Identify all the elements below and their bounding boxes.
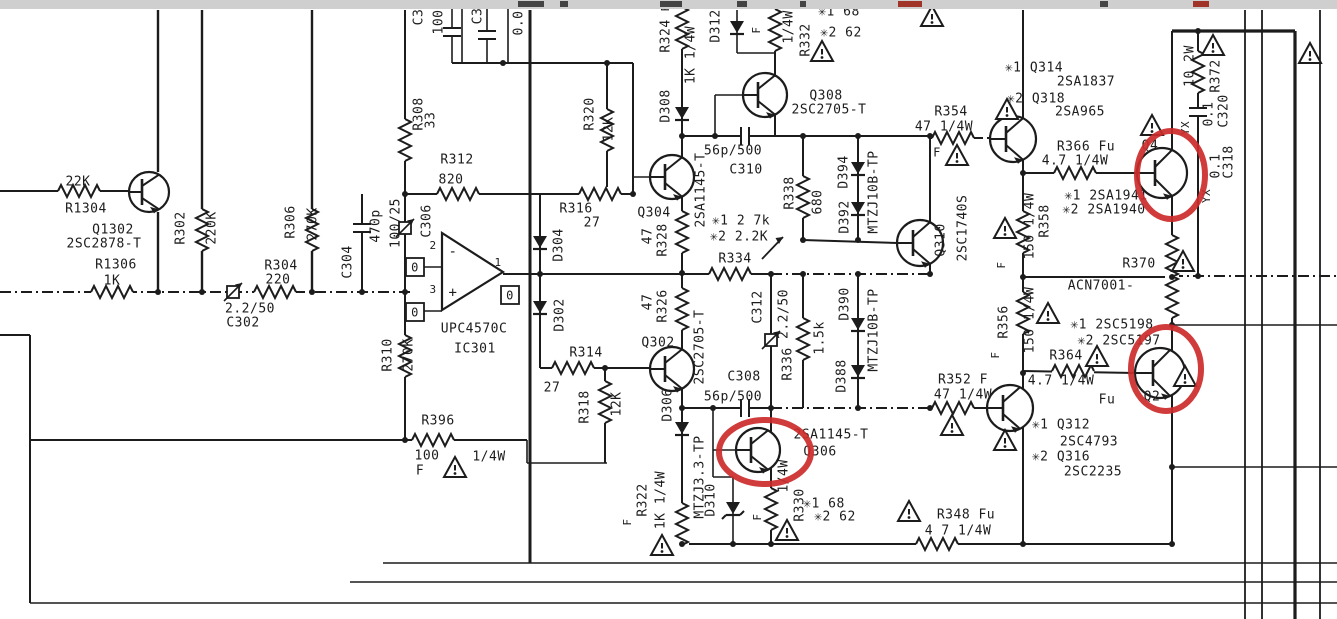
junction-dot (679, 270, 685, 276)
schematic-label: 150 1/4W (1023, 193, 1038, 260)
schematic-label: R352 F (938, 373, 988, 388)
schematic-label: F (621, 518, 634, 525)
schematic-label: D312 (709, 9, 724, 42)
schematic-label: 27 (584, 216, 601, 231)
junction-dot (679, 133, 685, 139)
junction-dot (630, 191, 636, 197)
schematic-label: 0.1 (1202, 102, 1217, 127)
schematic-label: D304 (552, 228, 567, 261)
schematic-label: R316 (559, 202, 592, 217)
schematic-label: F (995, 261, 1008, 268)
schematic-label: 56p/500 (704, 390, 762, 405)
schematic-label: 2.2/50 (777, 289, 792, 339)
schematic-label: D310 (704, 483, 719, 516)
schematic-label: 2SC1740S (956, 195, 971, 262)
junction-dot (1169, 541, 1175, 547)
junction-dot (679, 541, 685, 547)
schematic-label: D392 (838, 200, 853, 233)
junction-dot (855, 405, 861, 411)
schematic-label: F (989, 351, 1002, 358)
schematic-label: 2SC2705-T (693, 310, 708, 385)
top-scan-strip-mark (1193, 1, 1209, 7)
schematic-label: Q310 (934, 223, 949, 256)
schematic-label: ✳1 2SA1941 (1064, 189, 1147, 204)
schematic-label: 10 2W (1183, 45, 1198, 87)
wire (803, 240, 897, 243)
warning-exclamation-dot (454, 472, 457, 475)
schematic-label: 220K (205, 211, 220, 244)
junction-dot (768, 541, 774, 547)
warning-exclamation-dot (956, 160, 959, 163)
top-scan-strip-mark (800, 1, 806, 7)
schematic-label: C310 (729, 163, 762, 178)
diode-symbol (675, 422, 689, 434)
schematic-label: R354 (934, 105, 967, 120)
warning-exclamation-dot (1004, 445, 1007, 448)
schematic-label: R330 (793, 488, 808, 521)
schematic-label: 100 (432, 10, 447, 35)
schematic-label: ✳1 Q312 (1032, 418, 1090, 433)
schematic-label: 2SC2705-T (792, 103, 867, 118)
schematic-label: IC301 (454, 342, 496, 357)
schematic-label: 33 (424, 112, 439, 129)
schematic-label: 0.0 (512, 11, 527, 36)
diode-symbol (726, 502, 740, 514)
schematic-label: 3 (429, 283, 436, 296)
schematic-label: 1/4W (472, 450, 505, 465)
junction-dot (927, 405, 933, 411)
zener-tick (722, 515, 726, 519)
schematic-label: R348 Fu (937, 508, 995, 523)
schematic-label: UPC4570C (441, 322, 508, 337)
schematic-label: 4 7 1/4W (925, 524, 992, 539)
schematic-label: C306 (420, 204, 435, 237)
schematic-label: 4.7 1/4W (1028, 374, 1095, 389)
schematic-label: ✳2 2.2K (710, 230, 768, 245)
schematic-label: 1 (494, 256, 501, 269)
schematic-label: R324 (659, 19, 674, 52)
diode-symbol (533, 236, 547, 248)
schematic-label: F (933, 146, 941, 160)
schematic-label: D388 (835, 359, 850, 392)
schematic-label: C318 (1222, 145, 1237, 178)
warning-exclamation-dot (821, 56, 824, 59)
junction-dot (800, 237, 806, 243)
junction-dot (679, 405, 685, 411)
schematic-label: 56p/500 (704, 144, 762, 159)
schematic-label: 2SC4793 (1060, 435, 1118, 450)
schematic-label: R318 (578, 390, 593, 423)
schematic-label: 2 (429, 239, 436, 252)
top-scan-strip-mark (1100, 1, 1108, 7)
diode-symbol (851, 202, 865, 214)
schematic-label: ✳2 62 (814, 510, 856, 525)
schematic-label: 820 (439, 173, 464, 188)
schematic-label: R312 (440, 153, 473, 168)
junction-dot (604, 60, 610, 66)
schematic-label: R396 (421, 414, 454, 429)
junction-dot (402, 289, 408, 295)
junction-dot (710, 405, 716, 411)
schematic-label: R332 (799, 23, 814, 56)
schematic-label: ✳2 2SA1940 (1062, 203, 1145, 218)
warning-exclamation-dot (661, 550, 664, 553)
schematic-label: 1K (104, 274, 121, 289)
schematic-label: C308 (727, 370, 760, 385)
diode-symbol (675, 107, 689, 119)
junction-dot (855, 133, 861, 139)
junction-dot (402, 191, 408, 197)
top-scan-strip-mark (660, 1, 682, 7)
schematic-label: 47 1/4W (934, 388, 992, 403)
schematic-label: R302 (174, 211, 189, 244)
schematic-label: F (751, 513, 764, 520)
top-scan-strip-mark (737, 1, 747, 7)
schematic-label: D394 (837, 155, 852, 188)
junction-dot (155, 289, 161, 295)
warning-exclamation-dot (1182, 266, 1185, 269)
schematic-label: R336 (781, 347, 796, 380)
schematic-label: D390 (838, 287, 853, 320)
schematic-label: R326 (656, 289, 671, 322)
schematic-scan: 22KR1304Q13022SC2878-TR13061KR302220KR30… (0, 0, 1337, 619)
schematic-label: R1304 (65, 202, 107, 217)
schematic-label: R320 (583, 97, 598, 130)
schematic-label: 2SA965 (1055, 105, 1105, 120)
junction-dot (1169, 274, 1175, 280)
schematic-label: 27 (544, 381, 561, 396)
schematic-label: 0 (411, 306, 419, 320)
schematic-label: R304 (264, 259, 297, 274)
schematic-label: 680 (811, 190, 826, 215)
warning-exclamation-dot (1151, 130, 1154, 133)
schematic-label: ✳2 62 (820, 26, 862, 41)
schematic-label: R366 Fu (1057, 140, 1115, 155)
schematic-label: R328 (656, 223, 671, 256)
schematic-label: MTZJ10B-TP (867, 150, 882, 233)
junction-dot (768, 271, 774, 277)
junction-dot (537, 271, 543, 277)
junction-dot (1195, 28, 1201, 34)
schematic-label: D302 (553, 298, 568, 331)
diode-symbol (851, 162, 865, 174)
schematic-label: D306 (661, 388, 676, 421)
schematic-label: 2SC2235 (1064, 465, 1122, 480)
schematic-label: 12K (602, 117, 617, 142)
schematic-label: 100 (415, 449, 440, 464)
schematic-label: R356 (997, 305, 1012, 338)
schematic-label: D308 (659, 89, 674, 122)
schematic-label: 100/25 (389, 198, 404, 248)
schematic-label: 12K (610, 392, 625, 417)
schematic-label: 47 1/4W (915, 120, 973, 135)
schematic-label: Q308 (809, 89, 842, 104)
schematic-label: R310 (381, 338, 396, 371)
warning-exclamation-dot (786, 535, 789, 538)
schematic-label: 270K (306, 207, 321, 240)
schematic-label: 4.7 1/4W (1042, 154, 1109, 169)
schematic-label: + (449, 285, 458, 301)
schematic-label: 47 (641, 228, 656, 245)
warning-exclamation-dot (1184, 381, 1187, 384)
junction-dot (712, 133, 718, 139)
diode-symbol (851, 365, 865, 377)
junction-dot (800, 271, 806, 277)
schematic-label: C3 (471, 8, 486, 25)
junction-dot (1169, 464, 1175, 470)
schematic-label: 0 (411, 261, 419, 275)
schematic-label: 2SA1837 (1057, 75, 1115, 90)
top-scan-strip-mark (560, 1, 568, 7)
schematic-label: C3 (412, 9, 427, 26)
schematic-label: R358 (1038, 204, 1053, 237)
schematic-label: R334 (718, 252, 751, 267)
warning-exclamation-dot (1309, 58, 1312, 61)
schematic-label: R372 (1209, 59, 1224, 92)
schematic-label: R314 (569, 346, 602, 361)
junction-dot (855, 271, 861, 277)
warning-exclamation-dot (1004, 233, 1007, 236)
junction-dot (1020, 541, 1026, 547)
junction-dot (800, 133, 806, 139)
junction-dot (402, 437, 408, 443)
junction-dot (1020, 370, 1026, 376)
schematic-label: F (750, 26, 763, 33)
schematic-label: 2SC2878-T (67, 237, 142, 252)
junction-dot (199, 289, 205, 295)
schematic-label: MTZJ10B-TP (867, 288, 882, 371)
schematic-label: C302 (226, 316, 259, 331)
schematic-label: - (449, 244, 458, 260)
warning-exclamation-dot (1047, 318, 1050, 321)
schematic-label: 1K 1/4W (654, 471, 669, 529)
schematic-label: 470p (369, 209, 384, 242)
warning-exclamation-dot (931, 21, 934, 24)
junction-dot (855, 237, 861, 243)
warning-exclamation-dot (908, 516, 911, 519)
schematic-label: Q302 (641, 336, 674, 351)
schematic-label: ✳1 2 7k (712, 214, 770, 229)
schematic-label: F (416, 464, 424, 479)
junction-dot (768, 405, 774, 411)
diode-symbol (730, 21, 744, 33)
warning-exclamation-dot (951, 430, 954, 433)
junction-dot (1020, 274, 1026, 280)
schematic-label: C304 (341, 245, 356, 278)
junction-dot (1195, 273, 1201, 279)
schematic-label: 1/4W (782, 10, 797, 43)
schematic-label: R322 (636, 483, 651, 516)
schematic-label: R306 (284, 205, 299, 238)
schematic-label: 22K (66, 175, 91, 190)
schematic-label: ✳1 2SC5198 (1070, 318, 1153, 333)
junction-dot (1020, 170, 1026, 176)
top-scan-strip-mark (518, 1, 544, 7)
diode-symbol (533, 301, 547, 313)
schematic-label: Q1302 (92, 223, 134, 238)
schematic-label: C312 (751, 290, 766, 323)
top-scan-strip-mark (898, 1, 922, 7)
junction-dot (602, 365, 608, 371)
schematic-canvas: 22KR1304Q13022SC2878-TR13061KR302220KR30… (0, 0, 1337, 619)
junction-dot (359, 289, 365, 295)
schematic-label: 2.2/50 (225, 302, 275, 317)
warning-exclamation-dot (1006, 114, 1009, 117)
schematic-label: Fu (1099, 393, 1116, 408)
schematic-label: C320 (1217, 94, 1232, 127)
zener-tick (740, 511, 744, 515)
schematic-label: ACN7001- (1068, 279, 1135, 294)
warning-exclamation-dot (1212, 50, 1215, 53)
schematic-label: 1K 1/4W (684, 26, 699, 84)
schematic-label: ✳1 Q314 (1005, 61, 1063, 76)
schematic-label: 220 (266, 273, 291, 288)
schematic-label: ✳2 Q316 (1032, 450, 1090, 465)
junction-dot (927, 271, 933, 277)
schematic-label: Q304 (637, 206, 670, 221)
schematic-label: R1306 (95, 258, 137, 273)
schematic-label: R364 (1049, 349, 1082, 364)
schematic-label: 1.5k (813, 321, 828, 354)
schematic-label: 2SA1145-T (694, 153, 709, 228)
junction-dot (309, 289, 315, 295)
schematic-label: 47 (641, 294, 656, 311)
diode-symbol (851, 318, 865, 330)
schematic-label: R338 (783, 176, 798, 209)
warning-exclamation-dot (1096, 361, 1099, 364)
schematic-label: 270K (402, 338, 417, 371)
schematic-label: 0 (506, 289, 514, 303)
junction-dot (730, 541, 736, 547)
schematic-label: R370 (1122, 257, 1155, 272)
schematic-label: 150 1/4W (1023, 287, 1038, 354)
